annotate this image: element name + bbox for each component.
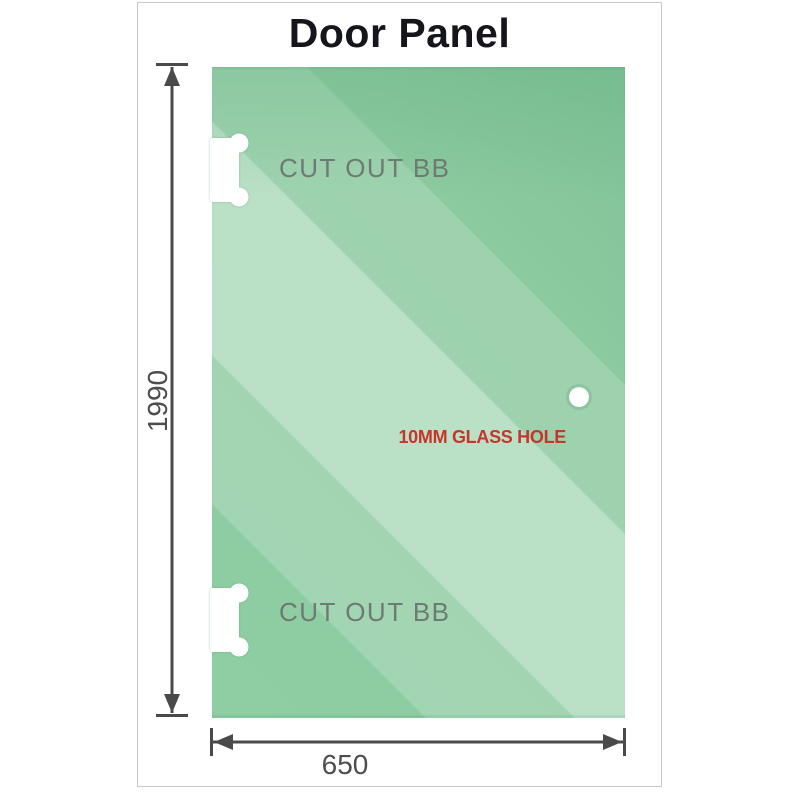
hinge-cutout-top-icon: [210, 129, 256, 211]
glass-hole-label: 10MM GLASS HOLE: [396, 427, 566, 448]
cutout-label-top: CUT OUT BB: [279, 153, 499, 184]
width-dimension-label: 650: [295, 749, 395, 781]
hinge-cutout-bottom-icon: [210, 579, 256, 661]
glass-hole-icon: [569, 387, 589, 407]
cutout-label-bottom: CUT OUT BB: [279, 597, 499, 628]
page-title: Door Panel: [137, 10, 662, 57]
height-dimension-label: 1990: [142, 351, 172, 451]
door-panel-diagram: Door Panel CUT OUT BB CUT OUT BB 10MM GL…: [0, 0, 800, 800]
horizontal-dimension-line: [206, 726, 630, 760]
